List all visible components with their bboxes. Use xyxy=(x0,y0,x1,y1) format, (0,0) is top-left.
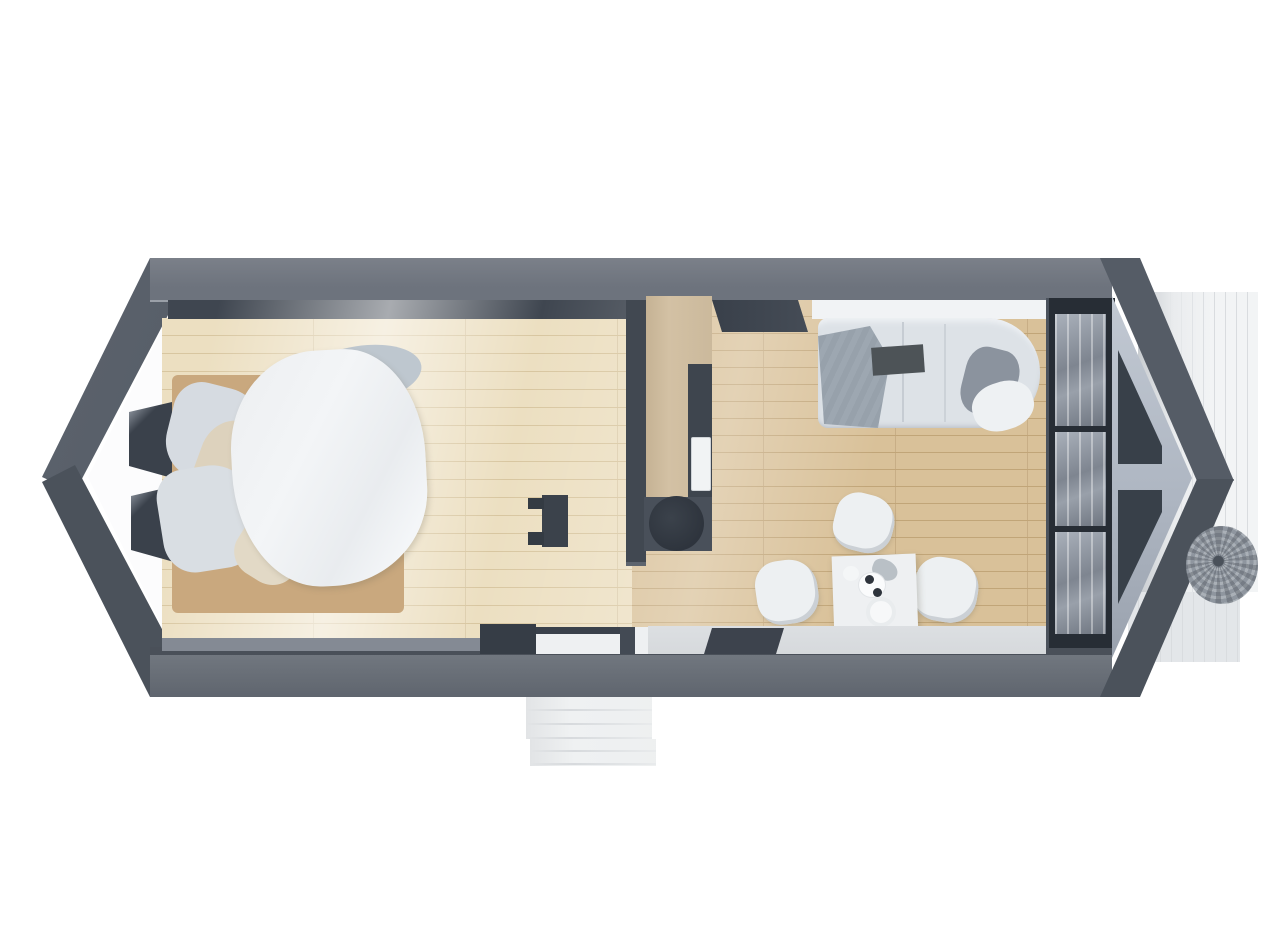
front-door-leaf xyxy=(480,624,536,654)
bowl xyxy=(843,566,859,581)
entry-steps-upper xyxy=(526,697,652,739)
rear-wall-inner-face xyxy=(168,300,626,319)
door-mat xyxy=(704,628,784,654)
wall-desk xyxy=(542,495,568,547)
entry-steps-lower xyxy=(530,739,656,766)
window-pane xyxy=(1055,532,1106,634)
floor-plan-render xyxy=(0,0,1280,946)
wicker-deck-chair xyxy=(1186,526,1258,604)
sofa-tray xyxy=(871,344,925,376)
desk-leg xyxy=(528,532,544,545)
round-hob xyxy=(649,496,704,551)
rear-wall xyxy=(150,258,1112,302)
window-pane xyxy=(1055,314,1106,426)
desk-leg xyxy=(528,498,544,509)
cup xyxy=(865,575,874,584)
rear-door-leaf xyxy=(712,300,808,332)
kitchen-sink xyxy=(691,437,711,491)
sofa-cushion-seam xyxy=(944,324,946,422)
threshold-frame xyxy=(536,627,630,634)
sofa-back-ledge xyxy=(812,300,1046,319)
partition-wall xyxy=(626,300,646,566)
window-pane xyxy=(1055,432,1106,526)
door-jamb xyxy=(620,627,635,654)
plate-ring xyxy=(866,597,896,627)
front-wall xyxy=(150,655,1112,697)
cup xyxy=(873,588,882,597)
